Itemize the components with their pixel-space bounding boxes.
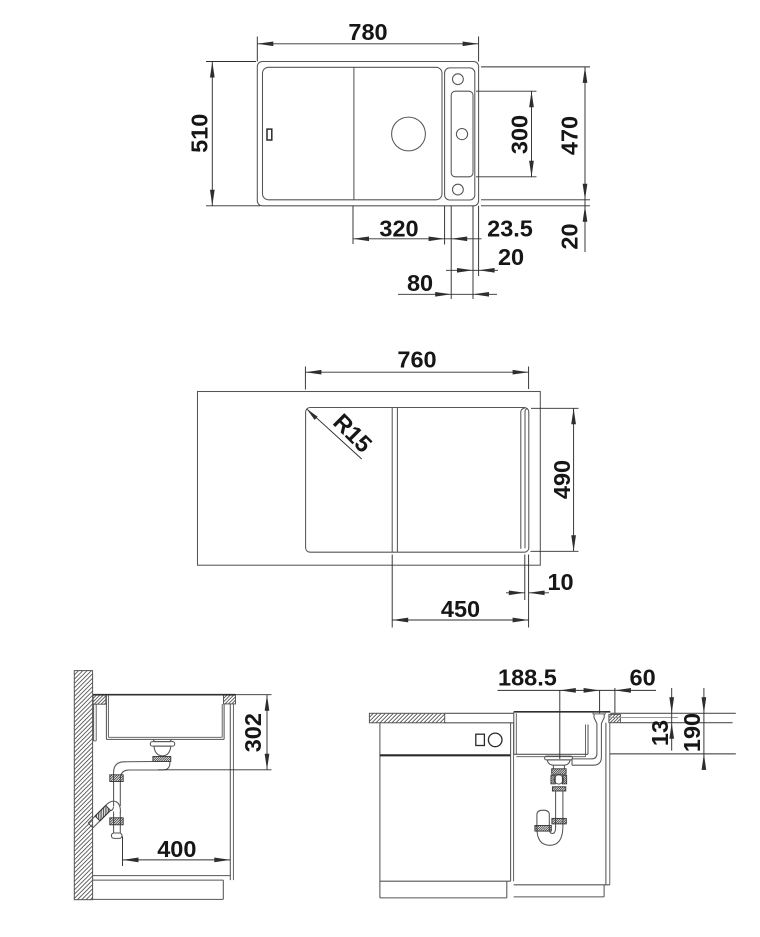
svg-text:760: 760 — [397, 346, 436, 372]
svg-text:490: 490 — [549, 460, 575, 499]
svg-text:190: 190 — [679, 713, 705, 752]
svg-text:188.5: 188.5 — [498, 665, 557, 691]
svg-text:470: 470 — [557, 116, 583, 155]
svg-text:320: 320 — [379, 215, 418, 241]
svg-text:20: 20 — [557, 223, 583, 249]
svg-text:80: 80 — [407, 270, 433, 296]
svg-text:302: 302 — [240, 713, 266, 752]
svg-text:R15: R15 — [328, 409, 377, 458]
svg-text:60: 60 — [630, 665, 656, 691]
svg-text:23.5: 23.5 — [487, 215, 533, 241]
svg-text:20: 20 — [498, 244, 524, 270]
svg-text:450: 450 — [441, 596, 480, 622]
svg-text:780: 780 — [348, 19, 387, 45]
svg-text:300: 300 — [507, 115, 533, 154]
svg-text:13: 13 — [647, 720, 673, 746]
svg-text:10: 10 — [547, 569, 573, 595]
svg-text:400: 400 — [157, 836, 196, 862]
svg-text:510: 510 — [187, 114, 213, 153]
